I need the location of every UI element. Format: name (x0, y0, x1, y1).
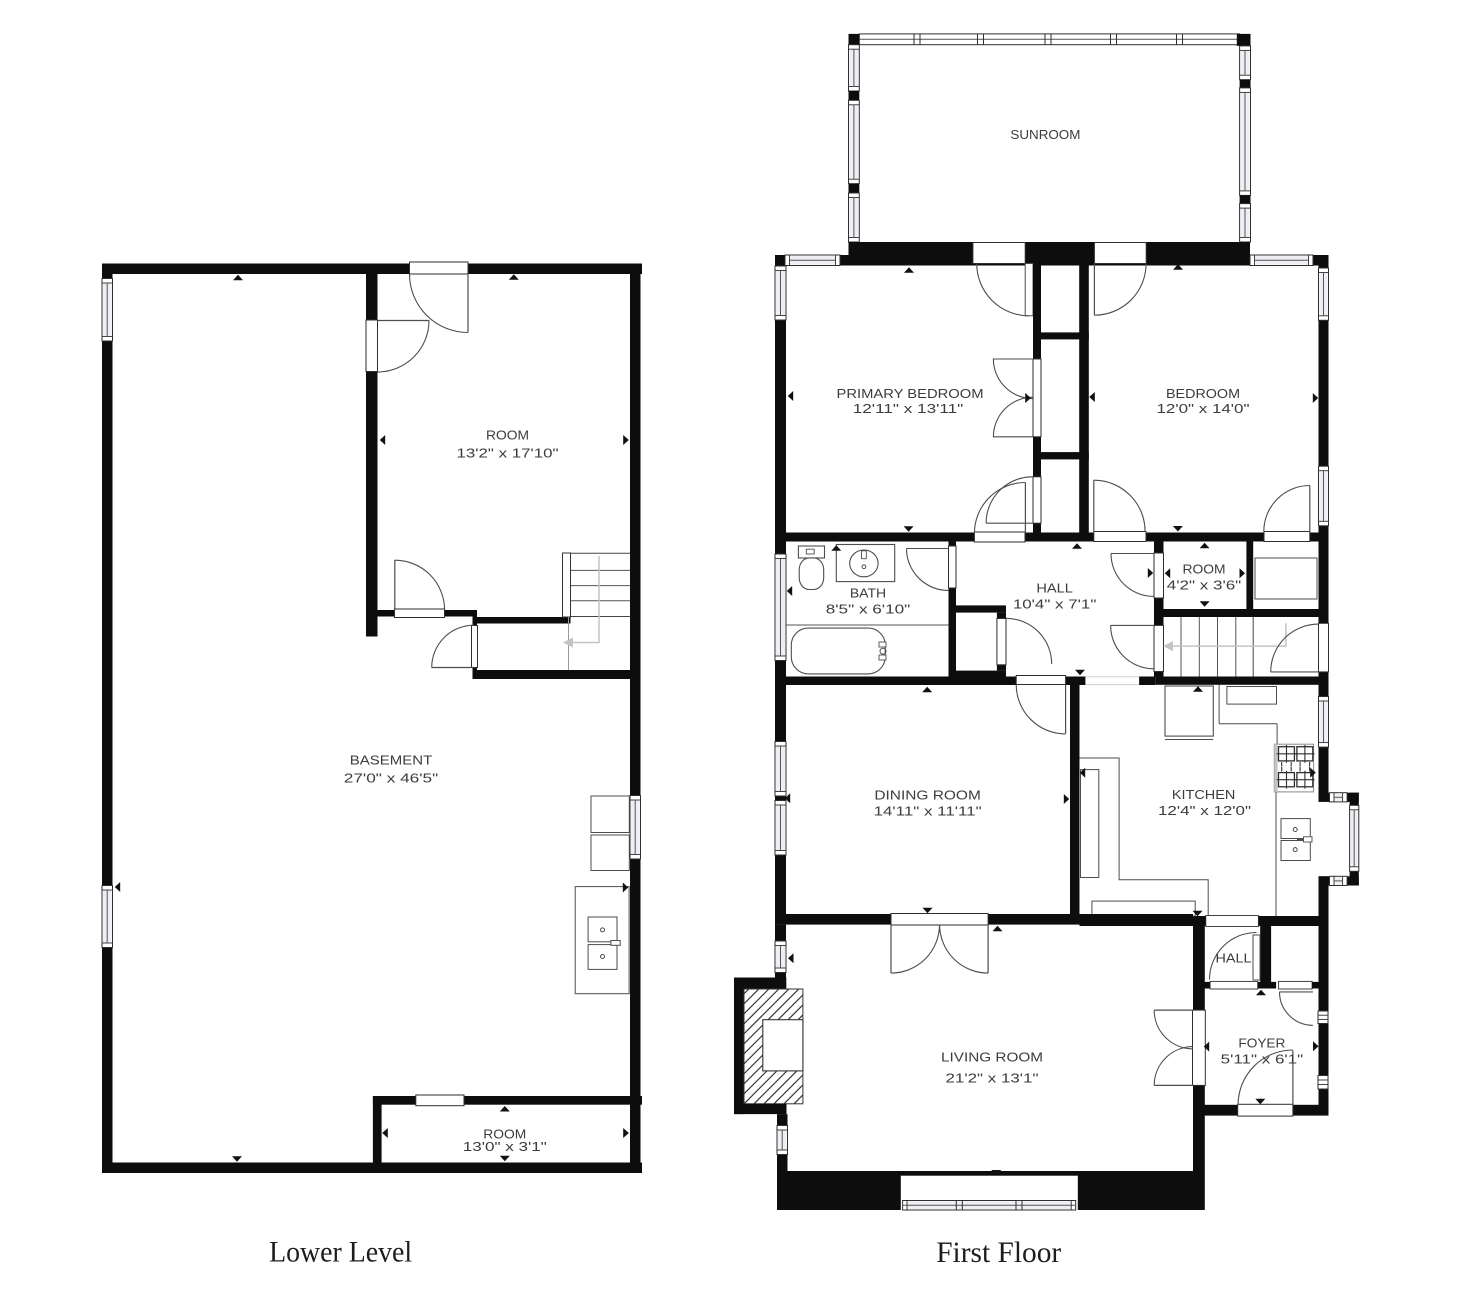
svg-text:LIVING ROOM: LIVING ROOM (941, 1050, 1043, 1065)
svg-text:12'4" x 12'0": 12'4" x 12'0" (1158, 803, 1251, 818)
svg-text:Lower Level: Lower Level (269, 1236, 412, 1268)
svg-text:13'2" x 17'10": 13'2" x 17'10" (457, 446, 559, 461)
svg-text:12'0" x 14'0": 12'0" x 14'0" (1157, 401, 1250, 416)
svg-text:First Floor: First Floor (936, 1237, 1061, 1269)
svg-text:13'0" x 3'1": 13'0" x 3'1" (463, 1139, 547, 1154)
svg-text:27'0" x 46'5": 27'0" x 46'5" (344, 771, 439, 786)
svg-text:FOYER: FOYER (1238, 1036, 1285, 1051)
svg-text:PRIMARY BEDROOM: PRIMARY BEDROOM (837, 386, 984, 401)
svg-text:21'2" x 13'1": 21'2" x 13'1" (946, 1071, 1039, 1086)
svg-text:KITCHEN: KITCHEN (1172, 787, 1236, 802)
svg-text:5'11" x 6'1": 5'11" x 6'1" (1221, 1052, 1304, 1067)
svg-text:8'5" x 6'10": 8'5" x 6'10" (826, 602, 911, 617)
svg-text:10'4" x 7'1": 10'4" x 7'1" (1013, 597, 1097, 612)
svg-text:ROOM: ROOM (486, 428, 529, 443)
svg-text:BASEMENT: BASEMENT (350, 753, 433, 768)
svg-text:HALL: HALL (1036, 581, 1073, 596)
svg-text:14'11" x 11'11": 14'11" x 11'11" (874, 804, 982, 819)
svg-text:HALL: HALL (1216, 950, 1252, 965)
svg-text:ROOM: ROOM (1183, 562, 1226, 577)
svg-text:DINING ROOM: DINING ROOM (874, 788, 981, 803)
svg-text:BEDROOM: BEDROOM (1166, 386, 1240, 401)
svg-text:BATH: BATH (850, 586, 886, 601)
svg-text:4'2" x 3'6": 4'2" x 3'6" (1167, 578, 1242, 593)
svg-text:SUNROOM: SUNROOM (1010, 127, 1080, 142)
svg-text:12'11" x 13'11": 12'11" x 13'11" (853, 401, 964, 416)
